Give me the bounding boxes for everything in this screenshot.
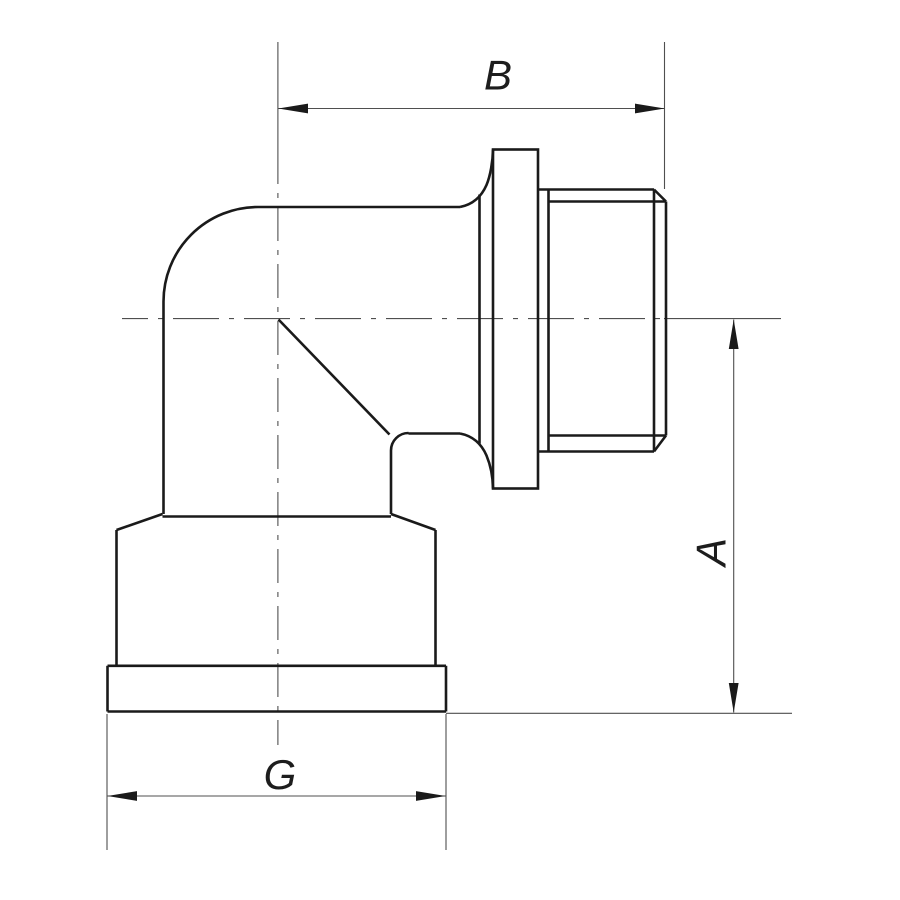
svg-text:B: B	[484, 52, 512, 99]
svg-text:A: A	[688, 538, 735, 569]
svg-text:G: G	[264, 751, 297, 798]
